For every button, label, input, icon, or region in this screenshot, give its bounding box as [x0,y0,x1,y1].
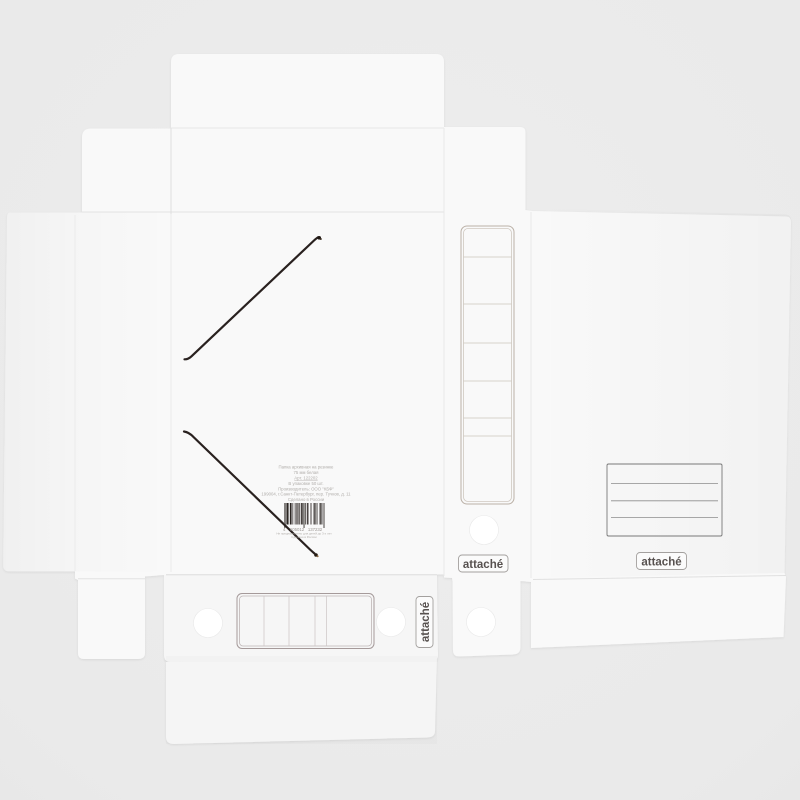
svg-text:attaché: attaché [420,602,432,642]
svg-text:attaché: attaché [641,557,681,569]
svg-text:attaché: attaché [463,559,503,571]
svg-text:Папка архивная на резинке: Папка архивная на резинке [279,465,335,470]
svg-text:В упаковке 50 шт.: В упаковке 50 шт. [288,481,323,486]
svg-text:Сделано в России: Сделано в России [291,535,317,539]
svg-text:199004, г.Санкт-Петербург, пер: 199004, г.Санкт-Петербург, пер. Тучков, … [261,492,351,497]
svg-text:Арт. 122202: Арт. 122202 [294,476,318,481]
svg-text:75 мм белая: 75 мм белая [294,470,320,475]
svg-text:Производитель: ООО "КБФ": Производитель: ООО "КБФ" [278,486,334,491]
svg-text:Сделано в России: Сделано в России [288,497,325,502]
